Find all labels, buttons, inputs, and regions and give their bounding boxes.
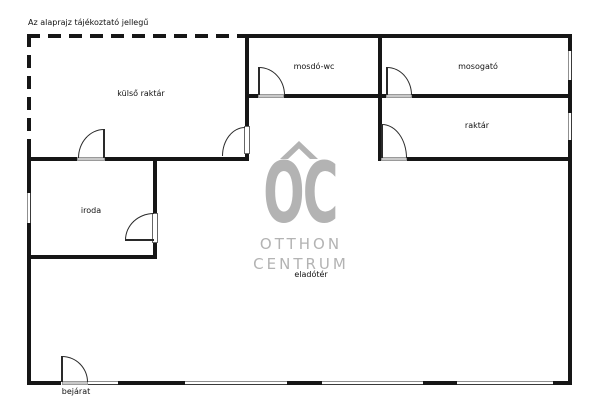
door-arc-kulso-raktar-b — [222, 127, 245, 156]
wall-left-dashed — [27, 34, 31, 144]
wall-bottom-4 — [423, 381, 457, 385]
wall-top — [245, 34, 572, 38]
window-bottom-2 — [185, 381, 287, 385]
window-right-mosogato — [568, 51, 572, 80]
wall-right-1 — [568, 34, 572, 51]
room-label-iroda: iroda — [81, 206, 101, 216]
room-label-eladoter: eladótér — [294, 270, 327, 280]
wall-raktar-bottom-2 — [407, 157, 572, 161]
door-arc-mosogato — [387, 67, 412, 95]
wall-left-lower — [27, 223, 31, 385]
watermark-line1: OTTHON — [260, 236, 342, 252]
wall-mosogato-bottom — [412, 94, 572, 98]
window-right-raktar — [568, 113, 572, 140]
room-label-bejarat: bejárat — [62, 387, 90, 397]
wall-left-upper — [27, 144, 31, 193]
wall-bottom-5 — [553, 381, 572, 385]
room-label-kulso-raktar: külső raktár — [117, 89, 164, 99]
wall-mosdo-bottom-1 — [245, 94, 258, 98]
wall-kulso-raktar-bottom-1 — [27, 157, 77, 161]
window-bottom-4 — [457, 381, 553, 385]
disclaimer-note: Az alaprajz tájékoztató jellegű — [28, 18, 148, 27]
wall-mosdo-bottom-2 — [284, 94, 386, 98]
room-label-mosogato: mosogató — [458, 62, 498, 72]
wall-top-dashed — [27, 34, 246, 38]
window-left-iroda — [27, 193, 31, 223]
room-label-mosdo-wc: mosdó-wc — [294, 62, 335, 72]
door-arc-kulso-raktar-a — [78, 129, 104, 158]
room-label-raktar: raktár — [465, 121, 489, 131]
door-arc-mosdo-wc — [259, 67, 285, 95]
door-arc-raktar — [382, 124, 407, 158]
door-arc-bejarat — [62, 356, 88, 382]
watermark-monogram: OC — [260, 138, 339, 250]
wall-iroda-bottom — [27, 255, 157, 259]
wall-bottom-1 — [27, 381, 61, 385]
wall-kulso-raktar-bottom-2 — [105, 157, 249, 161]
wall-bottom-2 — [118, 381, 185, 385]
window-bottom-1 — [88, 381, 118, 385]
door-arc-iroda — [125, 213, 154, 240]
wall-bottom-3 — [287, 381, 322, 385]
wall-kulso-raktar-right-upper — [245, 34, 249, 126]
wall-iroda-right-upper — [153, 161, 157, 213]
floor-plan: Az alaprajz tájékoztató jellegű — [0, 0, 600, 413]
window-bottom-3 — [322, 381, 423, 385]
wall-right-3 — [568, 140, 572, 385]
